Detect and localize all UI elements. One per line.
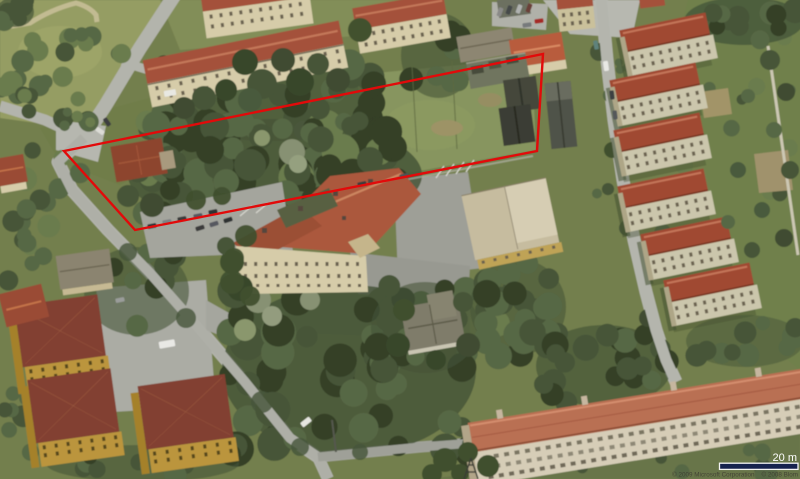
svg-text:20 m: 20 m: [773, 452, 797, 464]
svg-text:© 2009 Microsoft Corporation: © 2009 Microsoft Corporation © 2008 Blom: [672, 471, 798, 479]
